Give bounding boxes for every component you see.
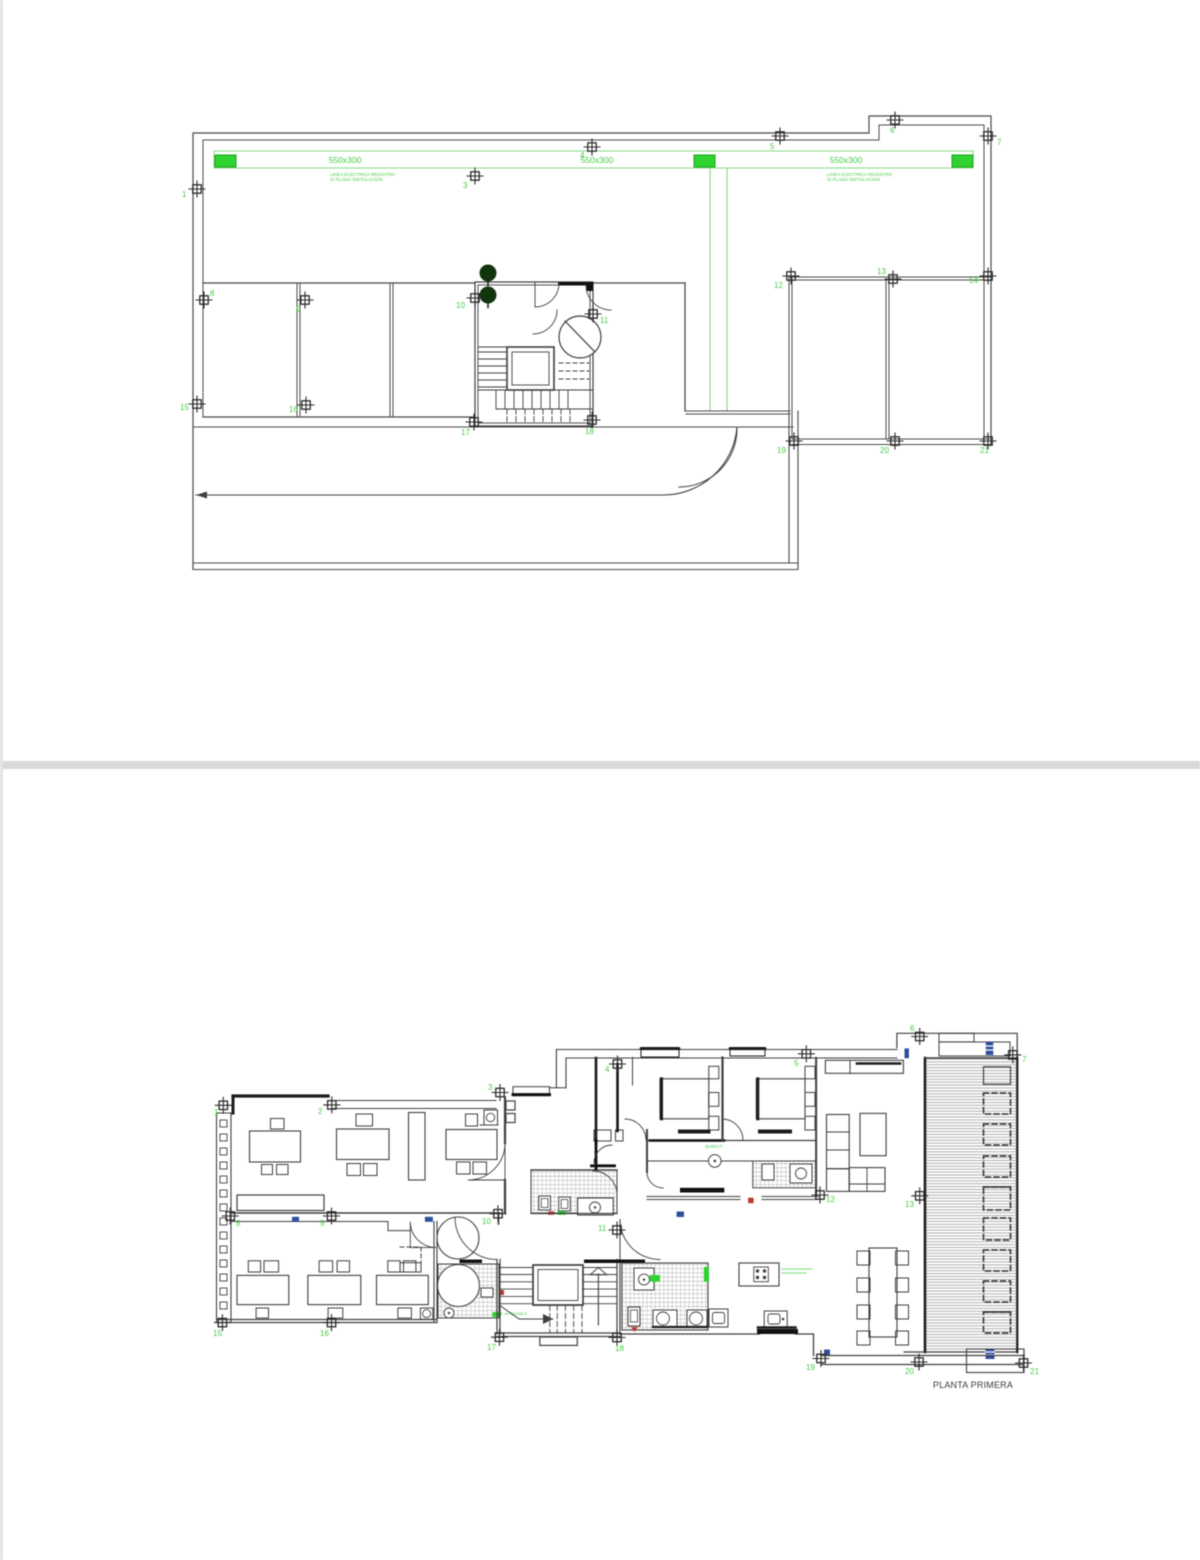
svg-text:5: 5 <box>794 1059 799 1068</box>
svg-text:17: 17 <box>487 1343 496 1352</box>
svg-text:9: 9 <box>320 1219 325 1228</box>
svg-text:19: 19 <box>777 446 786 455</box>
svg-text:550x300: 550x300 <box>329 155 362 165</box>
svg-text:20: 20 <box>905 1367 914 1376</box>
svg-text:S/ PLANO INSTALACION: S/ PLANO INSTALACION <box>330 177 383 182</box>
svg-text:8: 8 <box>210 289 215 298</box>
svg-text:13: 13 <box>905 1200 914 1209</box>
svg-text:19: 19 <box>806 1363 815 1372</box>
svg-text:12: 12 <box>826 1195 835 1204</box>
svg-text:550x300: 550x300 <box>581 155 614 165</box>
svg-text:9: 9 <box>296 305 301 314</box>
svg-text:550x300: 550x300 <box>830 155 863 165</box>
svg-text:10: 10 <box>482 1217 491 1226</box>
svg-text:3: 3 <box>488 1083 493 1092</box>
svg-text:7: 7 <box>1022 1055 1027 1064</box>
svg-text:14: 14 <box>969 276 978 285</box>
svg-text:15: 15 <box>213 1329 222 1338</box>
svg-text:2: 2 <box>318 1107 323 1116</box>
svg-text:13: 13 <box>877 267 886 276</box>
svg-text:1: 1 <box>214 1108 219 1117</box>
svg-text:4: 4 <box>605 1065 610 1074</box>
svg-text:10: 10 <box>456 301 465 310</box>
svg-text:1: 1 <box>182 190 187 199</box>
svg-text:12: 12 <box>774 281 783 290</box>
svg-text:6: 6 <box>890 126 895 135</box>
svg-text:18: 18 <box>585 427 594 436</box>
svg-text:15: 15 <box>180 403 189 412</box>
svg-text:3: 3 <box>463 181 468 190</box>
svg-text:16: 16 <box>320 1329 329 1338</box>
svg-text:11: 11 <box>600 316 609 325</box>
svg-text:18: 18 <box>615 1344 624 1353</box>
svg-text:5: 5 <box>770 142 775 151</box>
svg-text:8: 8 <box>236 1219 241 1228</box>
svg-text:21: 21 <box>980 446 989 455</box>
svg-text:17: 17 <box>461 428 470 437</box>
svg-text:7: 7 <box>997 138 1002 147</box>
svg-text:11: 11 <box>598 1224 607 1233</box>
svg-text:20: 20 <box>880 446 889 455</box>
svg-text:BAÑO P.: BAÑO P. <box>705 1143 723 1149</box>
svg-text:S/ PLANO INSTALACION: S/ PLANO INSTALACION <box>827 177 880 182</box>
svg-text:6: 6 <box>910 1024 915 1033</box>
svg-text:PLANTA PRIMERA: PLANTA PRIMERA <box>933 1380 1013 1390</box>
svg-text:16: 16 <box>289 405 298 414</box>
svg-text:4: 4 <box>580 151 585 160</box>
svg-text:21: 21 <box>1030 1367 1039 1376</box>
